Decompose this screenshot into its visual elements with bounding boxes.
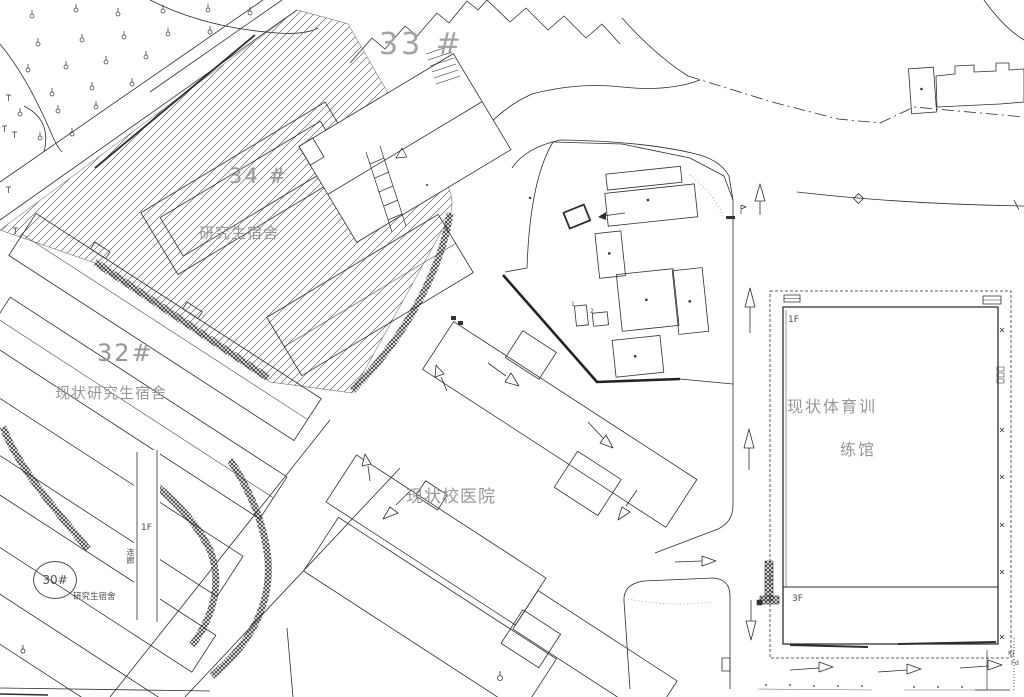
flow-arrow-down-right — [588, 422, 613, 448]
vegetation-symbol-icon — [26, 64, 30, 72]
vegetation-symbol-icon — [90, 82, 94, 90]
label-corner-note-top: KJ — [1008, 650, 1014, 657]
label-corridor-floor: 1F — [141, 524, 152, 533]
label-building-34-name: 研究生宿舍 — [199, 226, 279, 241]
road-island — [624, 578, 730, 689]
label-unit-2: 2 — [590, 309, 594, 315]
label-building-34: 34 # — [229, 166, 288, 187]
label-building-32: 32# — [97, 341, 154, 365]
flow-arrow-right — [878, 664, 921, 674]
flow-arrow-up — [362, 454, 371, 481]
site-boundary-dashed — [770, 291, 1011, 658]
boundary-dash-dot — [688, 76, 1024, 123]
label-building-30: 30# — [42, 573, 67, 587]
label-gym-floor-3f: 3F — [792, 595, 803, 604]
vegetation-symbol-icon — [64, 61, 68, 69]
vegetation-symbol-icon — [56, 105, 60, 113]
label-corridor-name: 连廊 — [126, 548, 134, 564]
flow-arrow-down-right — [488, 363, 519, 386]
central-compound — [426, 142, 746, 384]
vegetation-symbol-icon — [50, 88, 54, 96]
flow-arrow-right — [790, 662, 833, 672]
vegetation-symbol-icon — [161, 5, 165, 13]
vegetation-symbol-icon — [36, 38, 40, 46]
vegetation-symbol-icon — [104, 56, 108, 64]
flow-arrow-down — [746, 600, 756, 640]
label-building-33: 33 # — [379, 30, 464, 60]
flow-arrow-up — [744, 429, 754, 470]
connecting-corridor — [134, 450, 160, 622]
label-gym-floor-1f: 1F — [788, 316, 799, 325]
vegetation-symbol-icon — [166, 28, 170, 36]
vegetation-symbol-icon — [144, 51, 148, 59]
label-building-30-name: 研究生宿舍 — [73, 593, 116, 602]
label-gym-line1: 现状体育训 — [787, 399, 877, 415]
flow-arrow-down-left — [618, 490, 637, 520]
label-building-32-name: 现状研究生宿舍 — [55, 386, 167, 401]
vegetation-symbol-icon — [38, 132, 42, 140]
site-plan[interactable]: 33 # 34 # 研究生宿舍 32# 现状研究生宿舍 现状校医院 现状体育训 … — [0, 0, 1024, 697]
flow-arrows — [362, 184, 1002, 674]
vegetation-symbol-icon — [74, 4, 78, 12]
flow-arrow-right — [675, 556, 716, 566]
vegetation-symbol-icon — [18, 108, 22, 116]
flag-marker-icon — [741, 205, 746, 214]
northeast-buildings — [908, 63, 1024, 114]
gate-symbol-icon — [757, 561, 779, 605]
label-corner-note-bottom: Fd — [1011, 660, 1019, 667]
flow-arrow-up — [755, 184, 765, 215]
vegetation-symbol-icon — [116, 8, 120, 16]
gate-arrow-icon — [598, 212, 606, 220]
label-hospital: 现状校医院 — [406, 489, 496, 506]
vegetation-symbol-icon — [30, 10, 34, 18]
label-building-30-badge: 30# — [33, 561, 77, 599]
vegetation-symbol-icon — [80, 34, 84, 42]
label-unit-1: 1 — [571, 302, 575, 308]
vegetation-symbol-icon — [94, 101, 98, 109]
vegetation-symbol-icon — [208, 26, 212, 34]
label-gym-line2: 练馆 — [840, 442, 876, 458]
lamp-icon — [21, 645, 503, 681]
vegetation-symbol-icon — [122, 31, 126, 39]
flow-arrow-up-left — [435, 365, 447, 391]
vegetation-symbol-icon — [206, 4, 210, 12]
flow-arrow-up — [745, 288, 755, 333]
flow-arrow-right — [960, 660, 1002, 670]
vegetation-symbol-icon — [130, 78, 134, 86]
